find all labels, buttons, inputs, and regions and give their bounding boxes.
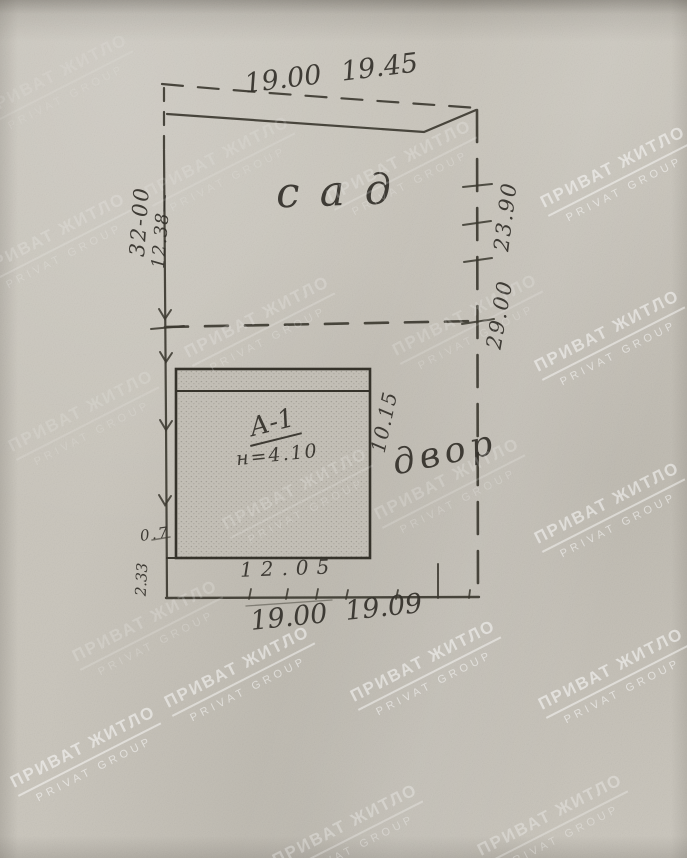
plot-plan-drawing xyxy=(0,0,687,858)
dimension-building-front: 12.05 xyxy=(240,556,338,579)
garden-area-label: сад xyxy=(275,168,412,215)
scanned-plan-page: 19.0019.45 сад двор А-1 н=4.10 32-00 12.… xyxy=(0,0,687,858)
dimension-step-width: 0.7 xyxy=(139,525,171,544)
